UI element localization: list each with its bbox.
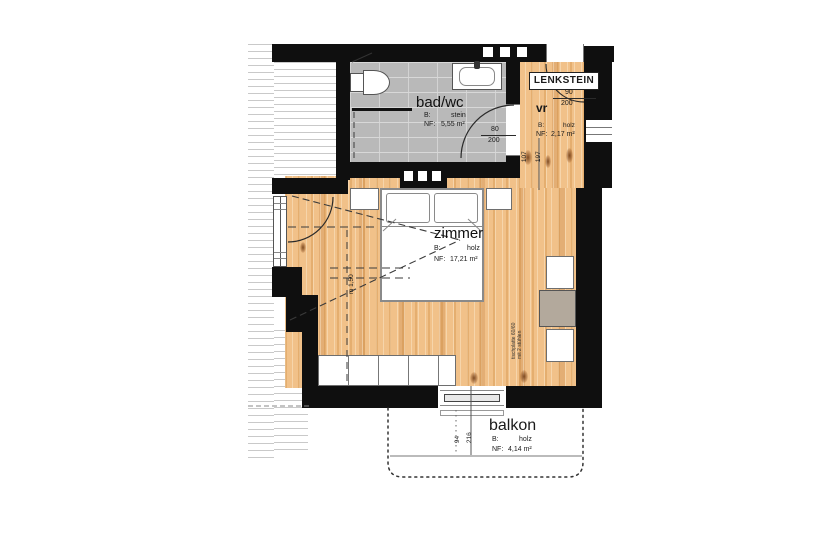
balkon-nf-value: 4,14 m²: [508, 446, 532, 454]
table-note: tischplatte 60/60 mit 2 stühlen: [512, 323, 523, 359]
vr-dim-a: 107: [521, 151, 528, 162]
bath-door-dim-line: [481, 135, 516, 136]
entry-door-dim-width: 90: [565, 89, 573, 97]
room-name-balkon: balkon: [489, 417, 536, 435]
vr-nf-value: 2,17 m²: [551, 131, 575, 139]
window-door-swing-arc: [288, 197, 333, 242]
badwc-nf-label: NF:: [424, 121, 435, 129]
bath-door-dim-width: 80: [491, 126, 499, 134]
vr-dim-b: 197: [535, 151, 542, 162]
entry-door-dim-line: [553, 98, 596, 99]
title-text: LENKSTEIN: [534, 75, 594, 86]
vr-nf-label: NF:: [536, 131, 547, 139]
room-name-badwc: bad/wc: [416, 95, 464, 112]
floor-plan: LENKSTEIN bad/wc B: stein NF: 5,55 m² vr…: [0, 0, 820, 560]
balcony-outline: [388, 408, 583, 477]
bed-fold-mark: [383, 219, 396, 231]
badwc-nf-value: 5,55 m²: [441, 121, 465, 129]
height-line-label: m 1,50: [348, 274, 355, 294]
vr-b-value: holz: [563, 122, 575, 129]
balkon-b-value: holz: [519, 436, 532, 444]
zimmer-nf-value: 17,21 m²: [450, 256, 478, 264]
badwc-b-value: stein: [451, 112, 466, 120]
room-name-vr: vr: [536, 102, 547, 115]
bath-corner-mark: [352, 53, 372, 62]
room-name-zimmer: zimmer: [434, 226, 483, 243]
zimmer-b-label: B:: [434, 245, 441, 253]
balcony-dim-b: 216: [466, 432, 473, 443]
linework-overlay: [0, 0, 820, 560]
bath-door-swing-arc: [461, 105, 514, 158]
zimmer-b-value: holz: [467, 245, 480, 253]
entry-door-dim-height: 200: [561, 100, 573, 108]
title-plate: LENKSTEIN: [529, 72, 599, 90]
balkon-b-label: B:: [492, 436, 499, 444]
vr-b-label: B:: [538, 122, 544, 129]
zimmer-nf-label: NF:: [434, 256, 445, 264]
bath-door-dim-height: 200: [488, 137, 500, 145]
table-note-line2: mit 2 stühlen: [518, 323, 524, 359]
badwc-b-label: B:: [424, 112, 431, 120]
balcony-dim-a: 94: [454, 436, 461, 443]
balkon-nf-label: NF:: [492, 446, 503, 454]
